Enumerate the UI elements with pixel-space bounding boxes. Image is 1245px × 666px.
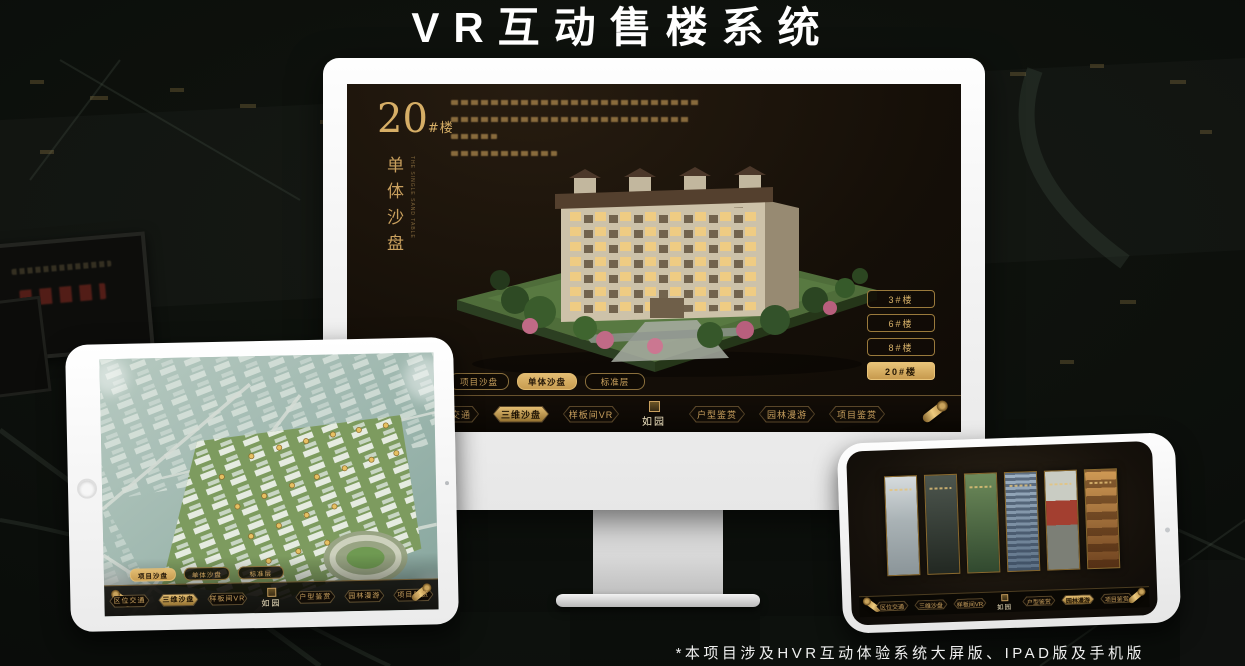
nav-item[interactable]: 样板间VR	[563, 406, 619, 423]
floor-button-list: 3#楼6#楼8#楼20#楼	[867, 290, 935, 380]
sub-tab[interactable]: 单体沙盘	[184, 567, 230, 581]
brand-logo[interactable]: 如园	[256, 587, 286, 609]
nav-item[interactable]: 区位交通	[875, 601, 908, 612]
brand-logo-text: 如园	[261, 597, 281, 608]
monitor-stand	[593, 508, 723, 598]
tablet-home-button[interactable]	[77, 478, 97, 498]
scene-gallery	[847, 467, 1156, 578]
promo-banner: VR互动售楼系统 20#楼 单体沙盘 THE SINGLE SAND TABLE	[0, 0, 1245, 666]
scene-panel[interactable]	[923, 474, 959, 575]
brand-logo[interactable]: 如园	[633, 401, 675, 428]
floor-button[interactable]: 6#楼	[867, 314, 935, 332]
monitor-sub-tabs: 项目沙盘单体沙盘标准层	[449, 373, 645, 390]
nav-item[interactable]: 园林漫游	[759, 406, 815, 423]
building-subtitle-en: THE SINGLE SAND TABLE	[409, 156, 415, 296]
building-number: 20#楼	[377, 98, 454, 150]
nav-item[interactable]: 三维沙盘	[158, 593, 198, 607]
tablet-device: 项目沙盘单体沙盘标准层 区位交通三维沙盘样板间VR 如园 户型鉴赏园林漫游项目鉴…	[65, 337, 459, 632]
monitor-stand-base	[556, 594, 760, 607]
sub-tab[interactable]: 单体沙盘	[517, 373, 577, 390]
nav-item[interactable]: 项目鉴赏	[829, 406, 885, 423]
brand-logo-text: 如园	[642, 413, 666, 428]
scene-panel[interactable]	[963, 472, 999, 573]
building-subtitle: 单体沙盘	[381, 156, 406, 296]
phone-bottom-nav: 区位交通三维沙盘样板间VR 如园 户型鉴赏园林漫游项目鉴赏	[859, 586, 1150, 617]
phone-camera-dot	[1165, 527, 1170, 532]
nav-item[interactable]: 园林漫游	[344, 589, 384, 603]
sub-tab[interactable]: 项目沙盘	[449, 373, 509, 390]
nav-item[interactable]: 户型鉴赏	[1022, 595, 1055, 606]
page-title: VR互动售楼系统	[0, 0, 1245, 56]
floor-button[interactable]: 20#楼	[867, 362, 935, 380]
tablet-bottom-nav: 区位交通三维沙盘样板间VR 如园 户型鉴赏园林漫游项目鉴赏	[104, 578, 439, 616]
footnote: *本项目涉及HVR互动体验系统大屏版、IPAD版及手机版	[676, 642, 1145, 663]
scene-panel[interactable]	[1003, 471, 1039, 572]
sub-tab[interactable]: 标准层	[585, 373, 645, 390]
brand-logo[interactable]: 如园	[992, 593, 1017, 611]
nav-item[interactable]: 项目鉴赏	[393, 588, 433, 602]
scene-panel[interactable]	[1043, 470, 1079, 571]
tablet-app-screen: 项目沙盘单体沙盘标准层 区位交通三维沙盘样板间VR 如园 户型鉴赏园林漫游项目鉴…	[99, 352, 438, 616]
nav-item[interactable]: 户型鉴赏	[295, 590, 335, 604]
building-hero-title: 20#楼 单体沙盘 THE SINGLE SAND TABLE	[377, 98, 454, 296]
seal-icon	[649, 401, 660, 412]
nav-item[interactable]: 项目鉴赏	[1100, 593, 1133, 604]
phone-app-screen: 区位交通三维沙盘样板间VR 如园 户型鉴赏园林漫游项目鉴赏	[846, 441, 1158, 626]
sub-tab[interactable]: 项目沙盘	[130, 568, 176, 582]
seal-icon	[267, 587, 276, 596]
nav-item[interactable]: 三维沙盘	[493, 406, 549, 423]
nav-item[interactable]: 园林漫游	[1061, 594, 1094, 605]
nav-item[interactable]: 三维沙盘	[914, 599, 947, 610]
nav-item[interactable]: 样板间VR	[953, 598, 986, 609]
scene-panel[interactable]	[1083, 468, 1119, 569]
phone-device: 区位交通三维沙盘样板间VR 如园 户型鉴赏园林漫游项目鉴赏	[837, 432, 1181, 634]
scene-panel[interactable]	[883, 475, 919, 576]
sub-tab[interactable]: 标准层	[238, 566, 284, 580]
brand-logo-text: 如园	[997, 600, 1012, 611]
scroll-menu-icon[interactable]	[921, 401, 947, 424]
floor-button[interactable]: 8#楼	[867, 338, 935, 356]
building-3d-model[interactable]	[445, 150, 889, 384]
tablet-camera-dot	[445, 481, 449, 485]
scroll-menu-icon[interactable]	[1127, 589, 1144, 605]
nav-item[interactable]: 区位交通	[109, 594, 149, 608]
nav-item[interactable]: 户型鉴赏	[689, 406, 745, 423]
nav-item[interactable]: 样板间VR	[207, 592, 247, 606]
floor-button[interactable]: 3#楼	[867, 290, 935, 308]
